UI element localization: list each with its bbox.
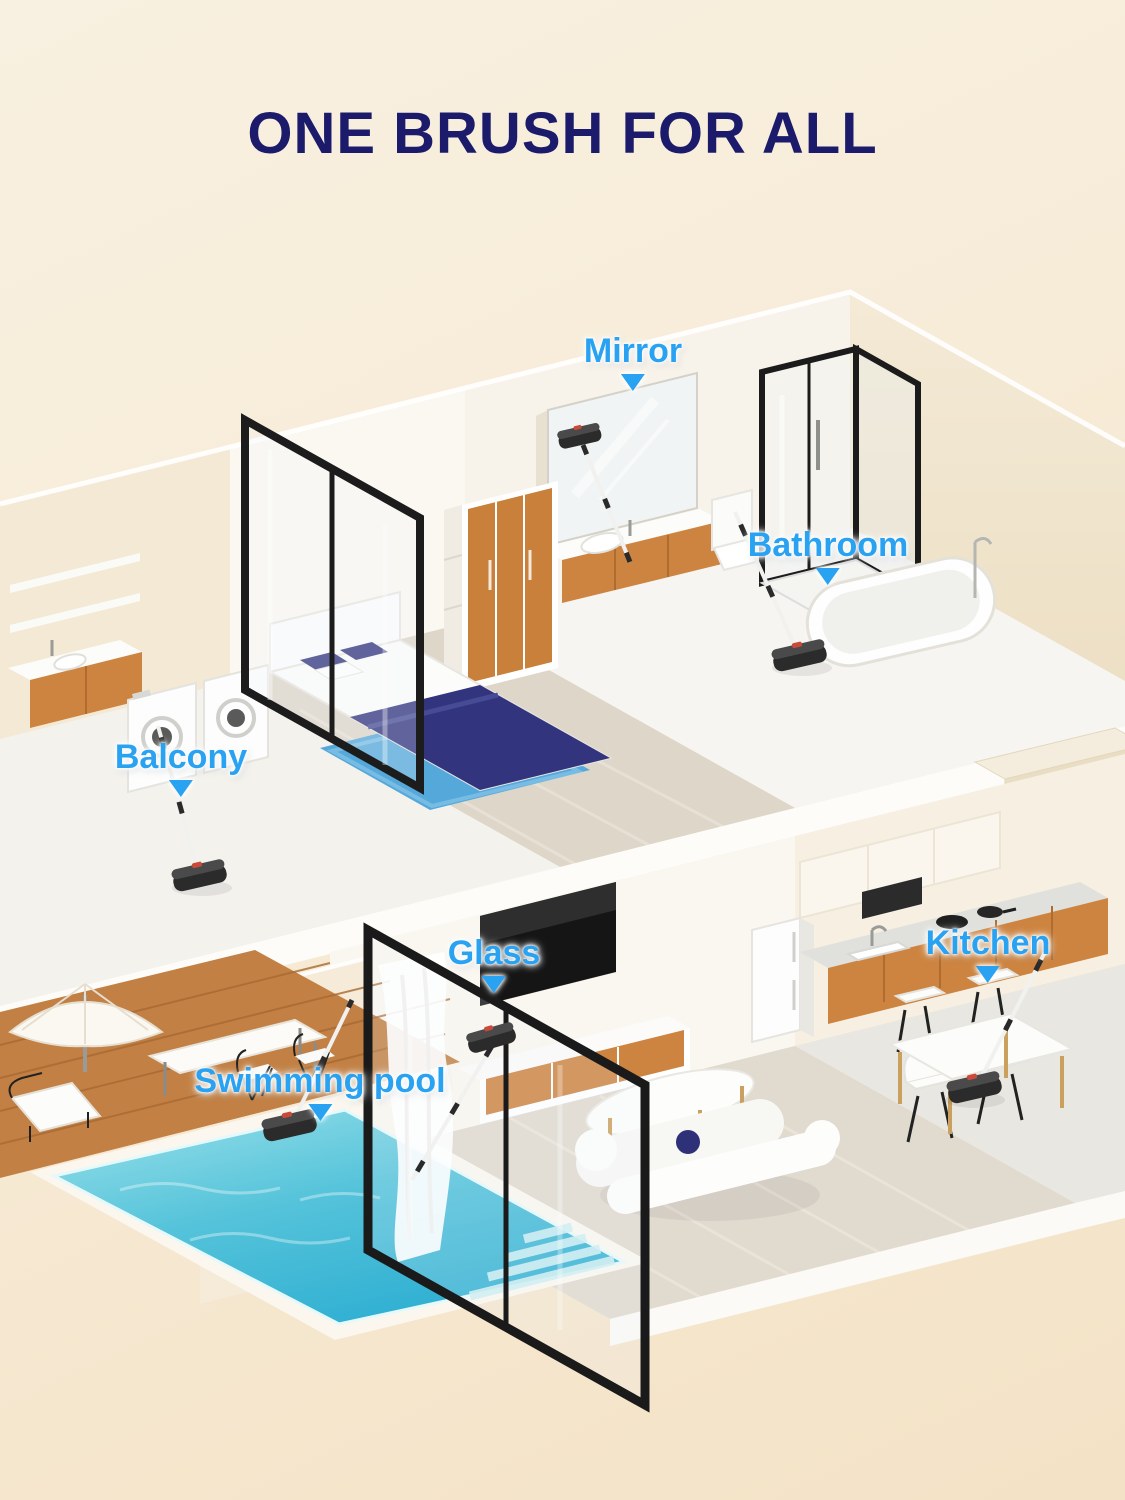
label-balcony-text: Balcony — [115, 738, 247, 776]
sofa-pillow — [676, 1130, 700, 1154]
label-swimming-pool-text: Swimming pool — [194, 1062, 445, 1100]
label-bathroom: Bathroom — [748, 528, 909, 585]
label-balcony: Balcony — [115, 740, 247, 797]
pot — [977, 906, 1003, 918]
down-arrow-icon — [816, 568, 840, 585]
fridge — [752, 918, 814, 1042]
label-glass-text: Glass — [448, 934, 541, 972]
down-arrow-icon — [308, 1104, 332, 1121]
down-arrow-icon — [482, 976, 506, 993]
label-bathroom-text: Bathroom — [748, 526, 909, 564]
wardrobe — [444, 481, 558, 697]
down-arrow-icon — [621, 374, 645, 391]
label-mirror: Mirror — [584, 334, 682, 391]
label-swimming-pool: Swimming pool — [194, 1064, 445, 1121]
down-arrow-icon — [976, 966, 1000, 983]
label-mirror-text: Mirror — [584, 332, 682, 370]
down-arrow-icon — [169, 780, 193, 797]
page: ONE BRUSH FOR ALL — [0, 0, 1125, 1500]
label-kitchen-text: Kitchen — [926, 924, 1051, 962]
label-glass: Glass — [448, 936, 541, 993]
mirror-unit — [536, 373, 722, 603]
label-kitchen: Kitchen — [926, 926, 1051, 983]
